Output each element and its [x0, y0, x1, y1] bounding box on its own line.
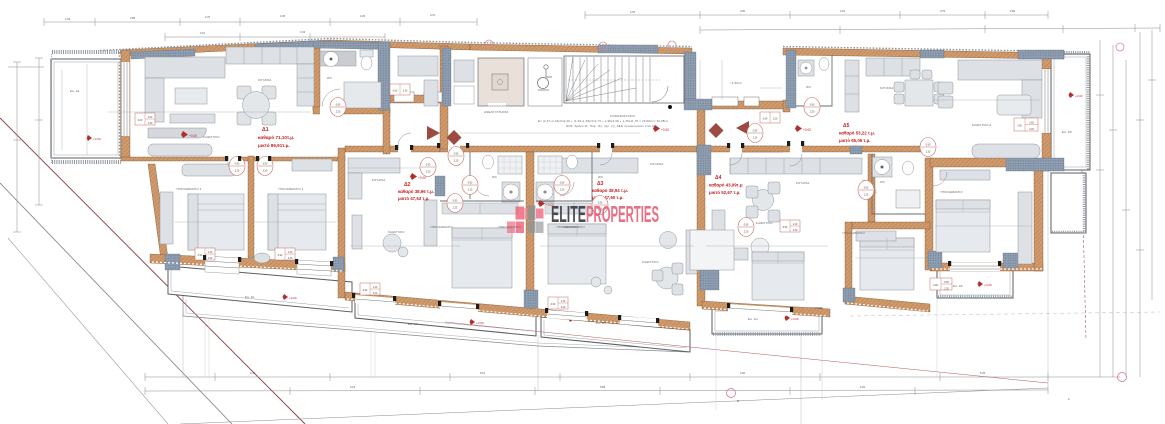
svg-text:0.90: 0.90	[235, 164, 240, 166]
svg-text:2.20: 2.20	[263, 171, 268, 173]
svg-text:0.80: 0.80	[468, 183, 473, 185]
svg-text:0.80: 0.80	[560, 183, 565, 185]
svg-text:3.90: 3.90	[740, 9, 746, 13]
svg-text:5.10: 5.10	[480, 371, 486, 375]
svg-text:1.40: 1.40	[793, 224, 798, 226]
svg-text:Δ1: Δ1	[262, 127, 269, 133]
svg-text:καθαρό 53,22 τ.μ.: καθαρό 53,22 τ.μ.	[839, 131, 875, 136]
svg-text:1.40: 1.40	[373, 287, 378, 289]
svg-text:0.90: 0.90	[198, 255, 203, 257]
svg-text:ΚΟΥΖΙΝΑ: ΚΟΥΖΙΝΑ	[880, 86, 894, 90]
svg-text:WC: WC	[598, 175, 603, 179]
svg-text:1.93: 1.93	[65, 17, 71, 21]
svg-text:2.20: 2.20	[561, 307, 566, 309]
svg-text:1.40: 1.40	[288, 252, 293, 254]
svg-text:καθαρό 43,09τ.μ: καθαρό 43,09τ.μ	[709, 183, 743, 188]
svg-text:4.35: 4.35	[250, 371, 256, 375]
svg-text:2.20: 2.20	[944, 289, 949, 291]
svg-text:2.20: 2.20	[288, 258, 293, 260]
svg-text:0.06: 0.06	[933, 285, 938, 287]
svg-text:2.20: 2.20	[468, 190, 473, 192]
svg-text:1.40: 1.40	[561, 301, 566, 303]
svg-text:+0.00: +0.00	[418, 176, 426, 180]
svg-text:ΚΟΥΖΙΝΑ: ΚΟΥΖΙΝΑ	[258, 78, 272, 82]
svg-text:ΕΞ. Δ6: ΕΞ. Δ6	[953, 284, 963, 288]
svg-text:0.60: 0.60	[393, 91, 398, 93]
svg-text:2.20: 2.20	[373, 293, 378, 295]
svg-text:ΥΠΝΟΔΩΜΑΤΙΟ: ΥΠΝΟΔΩΜΑΤΙΟ	[430, 225, 453, 229]
svg-text:2.20: 2.20	[426, 172, 431, 174]
svg-text:4.90: 4.90	[740, 371, 746, 375]
svg-text:ΑΝΕΛΚΥΣΤΗΡΑΣ: ΑΝΕΛΚΥΣΤΗΡΑΣ	[484, 110, 509, 114]
svg-text:ΕΞ. Δ2: ΕΞ. Δ2	[408, 322, 418, 326]
svg-text:+0.00: +0.00	[803, 128, 811, 132]
svg-text:2.20: 2.20	[336, 112, 341, 114]
svg-text:6.02: 6.02	[860, 385, 866, 389]
svg-text:WC: WC	[880, 180, 885, 184]
svg-text:Δ4: Δ4	[715, 175, 722, 181]
svg-text:5.88: 5.88	[600, 385, 606, 389]
svg-text:μικτό 65,06 τ.μ.: μικτό 65,06 τ.μ.	[839, 138, 871, 143]
svg-text:+0.00: +0.00	[289, 296, 297, 300]
svg-text:ΚΟΥΖΙΝΑ: ΚΟΥΖΙΝΑ	[650, 162, 664, 166]
svg-text:καθαρό 38,96 τ.μ.: καθαρό 38,96 τ.μ.	[398, 189, 434, 194]
svg-text:6.15: 6.15	[350, 385, 356, 389]
svg-text:3.47: 3.47	[430, 13, 436, 17]
svg-text:ΚΑΘΙΣΤΙΚΟ: ΚΑΘΙΣΤΙΚΟ	[388, 230, 405, 234]
svg-text:Δ3: Δ3	[597, 181, 604, 187]
svg-text:2.20: 2.20	[793, 230, 798, 232]
svg-text:Ε= (2,37+2,24)/2x2.20 + (1,99+: Ε= (2,37+2,24)/2x2.20 + (1,99+1,93)/2x2.…	[538, 119, 668, 123]
svg-text:+0.00: +0.00	[661, 128, 669, 132]
svg-text:2.60: 2.60	[1029, 123, 1034, 125]
svg-text:3.75: 3.75	[940, 9, 946, 13]
svg-text:ΥΠΝΟΔΩΜΑΤΙΟ: ΥΠΝΟΔΩΜΑΤΙΟ	[940, 190, 963, 194]
svg-text:0.80: 0.80	[864, 188, 869, 190]
svg-text:PROPERTIES: PROPERTIES	[586, 201, 659, 227]
svg-text:0.90: 0.90	[744, 225, 749, 227]
svg-text:ΕΞ. Δ4: ΕΞ. Δ4	[748, 317, 758, 321]
svg-text:+0.00: +0.00	[189, 134, 197, 138]
svg-text:0.90: 0.90	[551, 304, 556, 306]
svg-text:4.25: 4.25	[630, 10, 636, 14]
svg-text:0.90: 0.90	[926, 145, 931, 147]
svg-text:0.90: 0.90	[453, 201, 458, 203]
svg-text:>1,50m²: >1,50m²	[730, 81, 742, 85]
svg-text:μικτό 52,67 τ.μ.: μικτό 52,67 τ.μ.	[709, 190, 741, 195]
svg-text:ΥΠΝΟΔΩΜΑΤΙΟ: ΥΠΝΟΔΩΜΑΤΙΟ	[498, 225, 521, 229]
svg-text:M: M	[737, 401, 739, 403]
svg-text:2.20: 2.20	[403, 91, 408, 93]
svg-text:+0.00: +0.00	[1075, 94, 1083, 98]
svg-text:ΚΑΘΙΣΤΙΚΟ: ΚΑΘΙΣΤΙΚΟ	[756, 221, 773, 225]
svg-text:WC: WC	[492, 175, 497, 179]
svg-text:0.90: 0.90	[278, 255, 283, 257]
svg-text:2.20: 2.20	[560, 190, 565, 192]
svg-text:4.05: 4.05	[280, 14, 286, 18]
svg-text:ΕΞ. Δ5: ΕΞ. Δ5	[1062, 130, 1072, 134]
svg-text:3.85: 3.85	[130, 16, 136, 20]
svg-text:0.90: 0.90	[783, 227, 788, 229]
svg-text:ΚΛΙΜΑΚΟΣΤΑΣΙΟ: ΚΛΙΜΑΚΟΣΤΑΣΙΟ	[610, 114, 636, 118]
svg-text:2.20: 2.20	[208, 258, 213, 260]
svg-text:3.20: 3.20	[360, 14, 366, 18]
svg-text:+0.00: +0.00	[476, 321, 484, 325]
svg-text:ΥΠΝΟΔΩΜΑΤΙΟ 2: ΥΠΝΟΔΩΜΑΤΙΟ 2	[176, 187, 202, 191]
svg-text:2.20: 2.20	[810, 112, 815, 114]
svg-text:ΥΠΝΟΔΩΜΑΤΙΟ: ΥΠΝΟΔΩΜΑΤΙΟ	[562, 225, 585, 229]
svg-text:0.90: 0.90	[763, 119, 768, 121]
svg-text:καθαρό 38,94 τ.μ.: καθαρό 38,94 τ.μ.	[592, 188, 628, 193]
svg-text:0.90: 0.90	[454, 154, 459, 156]
svg-text:2.20: 2.20	[1029, 129, 1034, 131]
svg-text:μικτό 47,63 τ.μ.: μικτό 47,63 τ.μ.	[398, 196, 430, 201]
svg-text:ΥΠΝΟΔΩΜΑΤΙΟ 1: ΥΠΝΟΔΩΜΑΤΙΟ 1	[278, 187, 304, 191]
svg-text:ELITE: ELITE	[551, 201, 586, 227]
svg-text:0.65: 0.65	[944, 282, 949, 284]
svg-text:ΚΟΥΖΙΝΑ: ΚΟΥΖΙΝΑ	[372, 178, 386, 182]
svg-text:2.20: 2.20	[753, 138, 758, 140]
svg-text:2.20: 2.20	[148, 123, 153, 125]
svg-text:WC: WC	[806, 85, 811, 89]
svg-text:Δ2: Δ2	[404, 182, 411, 188]
svg-text:+0.00: +0.00	[984, 283, 992, 287]
svg-text:Δ5: Δ5	[843, 123, 850, 129]
svg-text:2.20: 2.20	[744, 232, 749, 234]
svg-text:μικτό 86,91τ.μ.: μικτό 86,91τ.μ.	[258, 143, 290, 148]
svg-text:ΚΑΘΙΣΤΙΚΟ: ΚΑΘΙΣΤΙΚΟ	[642, 260, 659, 264]
svg-text:2.86: 2.86	[1010, 9, 1016, 13]
svg-text:+0.00: +0.00	[791, 317, 799, 321]
svg-text:0.90: 0.90	[753, 131, 758, 133]
svg-text:ΕΞ. Δ1: ΕΞ. Δ1	[245, 295, 255, 299]
svg-text:ΝΟΚ, Άρθρο 11, Παρ. (Κ), περ.: ΝΟΚ, Άρθρο 11, Παρ. (Κ), περ. (ζ), ΔΕΝ π…	[566, 124, 657, 128]
svg-text:2.20: 2.20	[453, 208, 458, 210]
svg-text:2.20: 2.20	[926, 152, 931, 154]
svg-text:2.00: 2.00	[148, 117, 153, 119]
svg-text:0.90: 0.90	[426, 165, 431, 167]
svg-text:ΚΟΥΖΙΝΑ: ΚΟΥΖΙΝΑ	[796, 181, 810, 185]
svg-text:0.90: 0.90	[363, 290, 368, 292]
svg-text:καθαρό 71,10τ.μ.: καθαρό 71,10τ.μ.	[258, 135, 294, 140]
svg-text:3.10: 3.10	[200, 31, 206, 35]
svg-text:ΕΞ. Δ1: ΕΞ. Δ1	[70, 89, 80, 93]
svg-text:0.80: 0.80	[336, 105, 341, 107]
svg-text:1.40: 1.40	[208, 252, 213, 254]
svg-text:5.25: 5.25	[980, 371, 986, 375]
svg-text:0.80: 0.80	[810, 105, 815, 107]
svg-text:4.10: 4.10	[840, 9, 846, 13]
svg-text:+0.00: +0.00	[93, 137, 101, 141]
svg-text:3.43: 3.43	[300, 30, 306, 34]
svg-text:ΚΑΘΙΣΤΙΚΟ: ΚΑΘΙΣΤΙΚΟ	[203, 135, 220, 139]
svg-text:2.20: 2.20	[454, 161, 459, 163]
svg-text:2.20: 2.20	[235, 171, 240, 173]
svg-text:ΥΠΝΟΔΩΜΑΤΙΟ: ΥΠΝΟΔΩΜΑΤΙΟ	[842, 231, 865, 235]
svg-text:0.40: 0.40	[138, 120, 143, 122]
svg-text:2.20: 2.20	[864, 195, 869, 197]
svg-text:2.70: 2.70	[205, 15, 211, 19]
svg-text:ΚΑΘΙΣΤΙΚΟ Δ: ΚΑΘΙΣΤΙΚΟ Δ	[972, 123, 992, 127]
svg-text:3.06: 3.06	[1017, 126, 1022, 128]
svg-text:2.20: 2.20	[773, 119, 778, 121]
svg-text:0.90: 0.90	[263, 164, 268, 166]
svg-text:WC: WC	[327, 76, 332, 80]
